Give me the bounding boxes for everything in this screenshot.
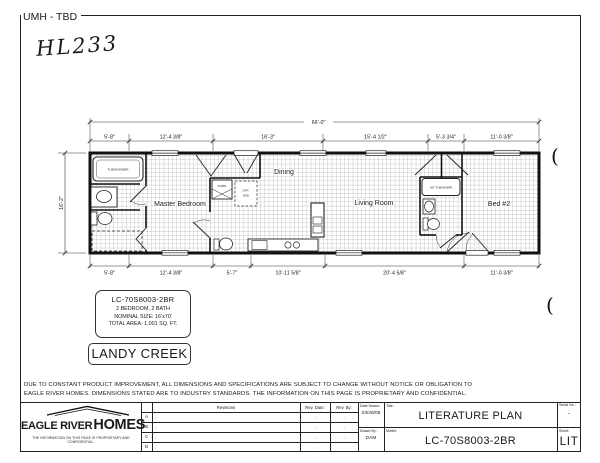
master-toilet	[98, 213, 112, 225]
sink-bowl	[293, 242, 299, 248]
room-label-bed2: Bed #2	[488, 201, 510, 208]
scanned-literature-plan-sheet: UMH - TBD HL233 ( (	[0, 0, 600, 463]
label-opt-wd: W/D	[243, 194, 250, 198]
utility-fixture-tank	[214, 239, 219, 250]
model-value: LC-70S8003-2BR	[385, 428, 556, 447]
room-label-living-room: Living Room	[355, 200, 394, 207]
pen-mark: (	[546, 293, 554, 317]
beds-baths: 2 BEDROOM, 2 BATH	[96, 306, 190, 312]
dim-left-height: 16'-2"	[59, 196, 65, 210]
dim-bottom: 20'-4 5/8"	[383, 271, 406, 277]
roof-icon	[25, 405, 137, 416]
bath2-sink	[425, 201, 434, 212]
sheet-cell: Sheet: LIT	[558, 428, 580, 452]
dim-bottom: 11'-0 3/8"	[490, 271, 512, 277]
dim-bottom: 10'-11 5/8"	[275, 271, 300, 277]
label-master-tub: TUB/SHOWER	[108, 168, 130, 172]
model-cell: Model: LC-70S8003-2BR	[385, 428, 556, 452]
dim-bottom: 5'-7"	[227, 271, 238, 277]
company-logo: EAGLE RIVER HOMES THE INFORMATION ON THI…	[21, 403, 141, 452]
master-toilet-tank	[91, 212, 97, 225]
company-name: EAGLE RIVER HOMES	[21, 418, 141, 435]
title-block: EAGLE RIVER HOMES THE INFORMATION ON THI…	[21, 402, 580, 452]
room-label-dining: Dining	[274, 169, 294, 176]
revisions-header: Revisions	[152, 405, 300, 410]
dim-top: 5'-3 3/4"	[436, 135, 456, 141]
header-label: UMH - TBD	[21, 10, 81, 24]
revision-row: D : : :	[141, 442, 358, 452]
title-cell: Title: LITERATURE PLAN	[385, 403, 556, 427]
revision-row: C : : :	[141, 432, 358, 442]
revision-row: B : : :	[141, 422, 358, 432]
dim-bottom: 5'-8"	[104, 271, 115, 277]
drawing-title: LITERATURE PLAN	[385, 403, 556, 422]
utility-fixture	[220, 238, 233, 250]
dim-top: 5'-8"	[104, 135, 115, 141]
label-opt-wd: OPT.	[243, 189, 250, 193]
company-tagline: THE INFORMATION ON THIS PAGE IS PROPRIET…	[21, 436, 141, 444]
rev-date-header: Rev. Date:	[300, 405, 330, 410]
furnace-box	[212, 180, 232, 199]
rev-by-header: Rev. By:	[330, 405, 358, 410]
label-furnace: FURN	[218, 184, 227, 188]
room-label-master-bedroom: Master Bedroom	[154, 201, 206, 208]
revision-row: A : : :	[141, 412, 358, 422]
dim-top: 12'-4 3/8"	[160, 135, 183, 141]
drawn-by-cell: Drawn By: DAM	[359, 428, 383, 452]
model-number: LC-70S8003-2BR	[96, 295, 190, 304]
dim-top: 15'-4 1/2"	[364, 135, 387, 141]
overall-width-dim: 66'-0"	[312, 120, 326, 126]
series-name-box: LANDY CREEK	[88, 343, 191, 365]
sink-bowl	[285, 242, 291, 248]
label-bath2-tub: 60" TUB/SHWR	[430, 186, 453, 190]
plan-body: Master Bedroom Dining Living Room Bed #2…	[90, 151, 539, 256]
dim-top: 11'-0 3/8"	[490, 135, 512, 141]
range	[252, 241, 267, 250]
dim-top: 16'-3"	[261, 135, 275, 141]
model-info-box: LC-70S8003-2BR 2 BEDROOM, 2 BATH NOMINAL…	[95, 290, 191, 338]
pen-mark: (	[551, 144, 559, 168]
dim-bottom: 12'-4 3/8"	[160, 271, 183, 277]
master-sink	[97, 191, 112, 203]
bath2-toilet	[428, 219, 440, 230]
total-area: TOTAL AREA: 1,001 SQ. FT.	[96, 321, 190, 327]
floor-plan-drawing: 66'-0" 5'-8" 12'-4 3/8" 16'-3" 15'-4 1/2…	[0, 0, 600, 463]
nominal-size: NOMINAL SIZE: 16'x70'	[96, 314, 190, 320]
date-drawn-cell: Date Drawn: 03/28/05	[359, 403, 383, 427]
serial-cell: Serial No.: -	[558, 403, 580, 427]
